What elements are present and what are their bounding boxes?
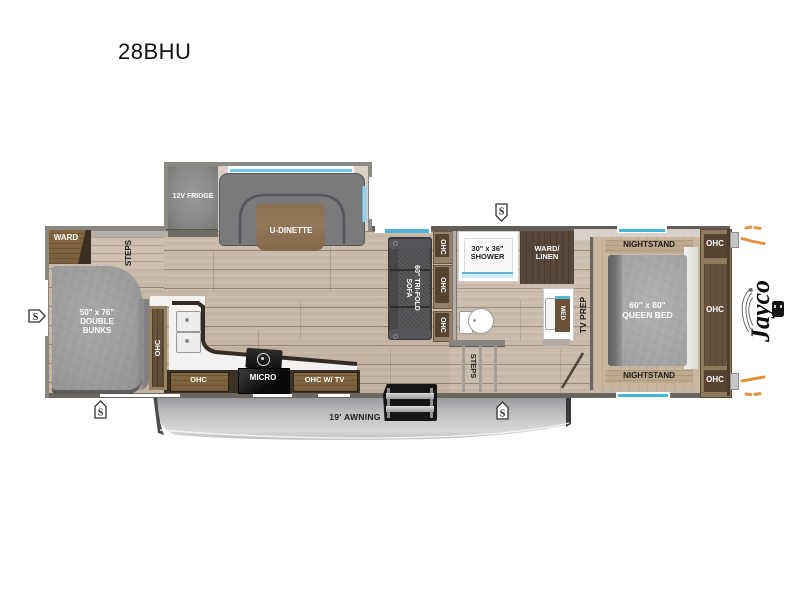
svg-text:S: S <box>98 408 104 419</box>
svg-text:S: S <box>500 409 506 420</box>
svg-text:S: S <box>33 312 39 323</box>
svg-text:S: S <box>499 207 505 218</box>
